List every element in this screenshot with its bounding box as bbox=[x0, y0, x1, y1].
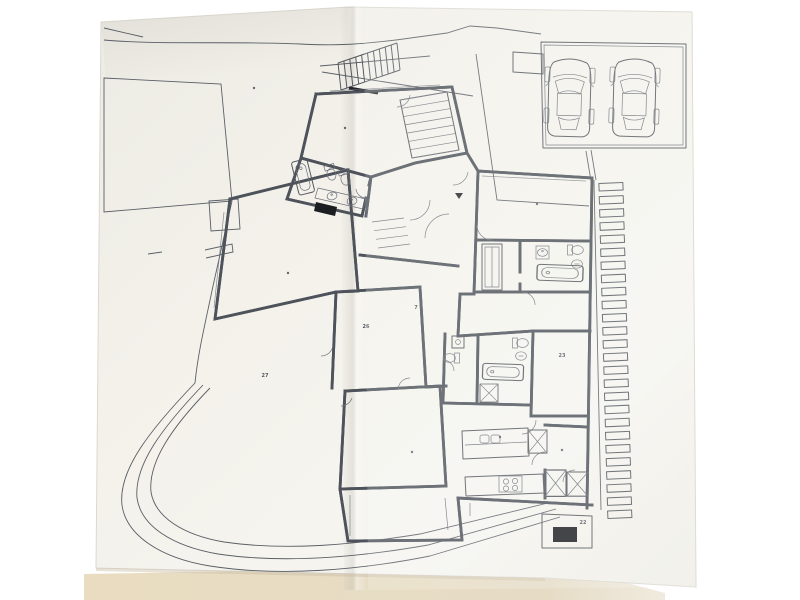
floor-plan-canvas: 726272322 bbox=[0, 0, 800, 600]
room-marker-dot bbox=[344, 127, 346, 129]
room-marker-dot bbox=[253, 87, 255, 89]
light-sheen bbox=[364, 6, 696, 590]
room-marker-dot bbox=[287, 272, 289, 274]
floor-plan-photo: 726272322 bbox=[0, 0, 800, 600]
room-number-label: 27 bbox=[262, 373, 269, 379]
